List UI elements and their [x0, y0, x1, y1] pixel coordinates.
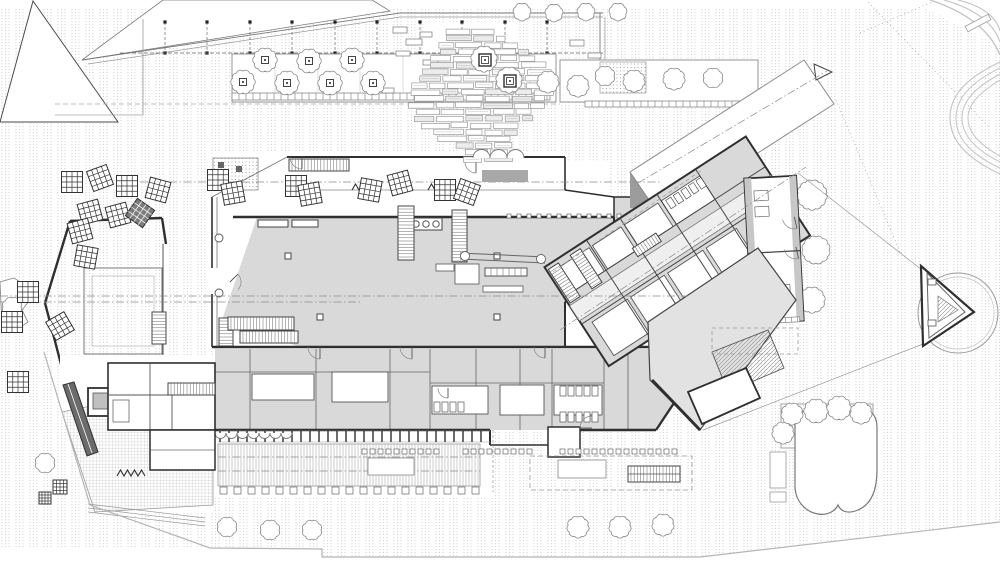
east-terrace-bench	[585, 101, 747, 107]
terrace-table	[253, 48, 277, 72]
paver	[503, 449, 508, 454]
column-marker	[460, 20, 463, 23]
paver-brick	[474, 36, 494, 41]
column	[285, 253, 291, 259]
paver	[388, 487, 395, 494]
table-center	[286, 82, 288, 84]
paver	[290, 487, 297, 494]
column-marker	[290, 20, 293, 23]
reception-desk	[258, 220, 288, 227]
east-terrace	[560, 60, 758, 102]
stall	[568, 386, 574, 396]
paver	[495, 449, 500, 454]
terrace-table	[361, 71, 385, 95]
stall	[458, 402, 464, 412]
paver	[527, 214, 531, 218]
paver	[519, 449, 524, 454]
hall-south-stair-box	[228, 317, 294, 330]
paver	[597, 214, 601, 218]
stall	[560, 412, 566, 422]
paver	[262, 487, 269, 494]
paver-brick	[441, 109, 464, 114]
stall	[450, 402, 456, 412]
paver-brick	[438, 136, 467, 141]
paver-brick	[430, 63, 453, 68]
paving-pad	[368, 458, 414, 475]
paver	[444, 487, 451, 494]
paver	[332, 487, 339, 494]
room	[500, 385, 544, 415]
grid-table	[62, 172, 83, 193]
stall	[592, 386, 598, 396]
tree	[623, 70, 645, 92]
paver	[471, 449, 476, 454]
paver	[472, 487, 479, 494]
table-center	[372, 82, 374, 84]
entry-steps	[289, 159, 349, 171]
column	[317, 314, 323, 320]
stall	[576, 386, 582, 396]
paver-brick	[443, 76, 461, 81]
paver-brick	[456, 143, 473, 148]
pool-planter	[770, 492, 786, 502]
column-marker	[375, 20, 378, 23]
paver	[479, 449, 484, 454]
room	[332, 372, 388, 402]
grid-table	[8, 372, 29, 393]
paver	[386, 449, 391, 454]
paver-brick	[414, 116, 434, 121]
room	[252, 374, 314, 400]
paver-brick	[534, 95, 544, 100]
entry-arches	[473, 150, 524, 159]
paver	[511, 449, 516, 454]
toilet-stalls	[560, 412, 598, 422]
paver	[374, 487, 381, 494]
terrace-table	[231, 70, 255, 94]
paver	[587, 214, 591, 218]
furniture-symbol	[420, 32, 432, 37]
paver	[248, 487, 255, 494]
stall	[560, 386, 566, 396]
paver	[576, 449, 581, 454]
table-center	[242, 81, 244, 83]
paver-brick	[494, 123, 518, 128]
paver	[607, 214, 611, 218]
core-stair-a-box	[398, 206, 414, 260]
paver	[234, 487, 241, 494]
paver	[640, 449, 645, 454]
grid-table	[74, 245, 98, 269]
column	[494, 253, 500, 259]
column	[494, 314, 500, 320]
paver	[426, 449, 431, 454]
stall	[568, 412, 574, 422]
paver-brick	[456, 42, 482, 47]
walkway-column	[537, 255, 546, 264]
tree	[513, 3, 531, 21]
table-center	[329, 82, 331, 84]
paver	[517, 214, 521, 218]
grid-table	[53, 480, 67, 494]
paver-brick	[431, 56, 451, 61]
floor-plan-svg	[0, 0, 1000, 572]
terrace-table	[275, 71, 299, 95]
paver-brick	[466, 96, 483, 101]
paver	[463, 449, 468, 454]
bench	[585, 101, 747, 107]
tree	[781, 403, 803, 425]
paver-brick	[485, 130, 502, 135]
lawn-blob	[795, 408, 877, 514]
southwest-rooms	[108, 363, 215, 430]
paver	[318, 487, 325, 494]
tree	[537, 71, 559, 93]
entry-mat	[482, 170, 528, 182]
pool-planter	[770, 452, 786, 488]
stall	[576, 412, 582, 422]
lookout-bench	[928, 320, 936, 326]
paver	[360, 487, 367, 494]
paver	[507, 214, 511, 218]
paver	[632, 449, 637, 454]
grid-table	[435, 180, 456, 201]
furniture-symbol	[406, 39, 422, 45]
tree	[802, 236, 830, 264]
paver	[600, 449, 605, 454]
paver	[394, 449, 399, 454]
table-center	[351, 59, 353, 61]
paver-brick	[448, 83, 474, 88]
column-marker	[545, 20, 548, 23]
paver	[416, 487, 423, 494]
grid-table	[117, 176, 138, 197]
paver	[664, 449, 669, 454]
tree	[652, 514, 674, 536]
paver-brick	[417, 109, 440, 114]
paver-brick	[437, 116, 464, 121]
column-marker	[333, 20, 336, 23]
paver-brick	[531, 103, 545, 108]
column-marker	[163, 20, 166, 23]
paver-brick	[472, 29, 495, 34]
paver	[527, 449, 532, 454]
tree	[827, 396, 851, 420]
paver	[410, 449, 415, 454]
paver	[458, 487, 465, 494]
paver	[487, 449, 492, 454]
paver-brick	[494, 109, 514, 114]
paver	[346, 487, 353, 494]
paver	[220, 487, 227, 494]
paver	[434, 449, 439, 454]
paver-brick	[456, 102, 482, 107]
paver	[672, 449, 677, 454]
column-marker	[503, 20, 506, 23]
grid-table	[298, 182, 322, 206]
paver	[616, 449, 621, 454]
paver	[568, 449, 573, 454]
bridge-stair	[168, 383, 215, 395]
paver-brick	[486, 116, 503, 121]
paver	[560, 449, 565, 454]
paver-brick	[514, 103, 528, 108]
furniture-symbol	[570, 40, 584, 46]
planter-box	[236, 166, 242, 172]
planter-box	[218, 162, 224, 168]
grid-table	[221, 181, 245, 205]
toilet-stalls	[560, 386, 598, 396]
paver	[402, 449, 407, 454]
paver-brick	[440, 49, 455, 54]
paver	[577, 214, 581, 218]
paver	[276, 487, 283, 494]
paver	[304, 487, 311, 494]
tree	[663, 68, 685, 90]
paver-brick	[429, 83, 445, 88]
paver-brick	[421, 123, 449, 128]
column-marker	[418, 20, 421, 23]
table-center	[308, 60, 310, 62]
terrace-table	[340, 48, 364, 72]
paver	[584, 449, 589, 454]
paver-brick	[519, 56, 535, 61]
paver-row	[560, 449, 677, 454]
paver-brick	[436, 102, 454, 107]
paver-brick	[415, 96, 444, 101]
paver	[567, 214, 571, 218]
paver-brick	[411, 90, 440, 95]
paver-brick	[516, 109, 531, 114]
paver	[418, 449, 423, 454]
hall-south-stair	[240, 331, 298, 343]
bridge-stair-box	[168, 383, 215, 395]
tree	[577, 3, 595, 21]
tree	[850, 402, 872, 424]
terrace-table	[297, 49, 321, 73]
reception-desk	[292, 220, 318, 227]
tree	[609, 516, 631, 538]
round-column	[215, 234, 223, 242]
paver	[656, 449, 661, 454]
tree	[567, 516, 589, 538]
core-stair-a	[398, 206, 414, 260]
furniture-symbol	[396, 51, 410, 56]
paver-brick	[446, 29, 470, 34]
desk	[436, 264, 454, 271]
grid-table	[18, 282, 39, 303]
deck-hatched	[218, 444, 480, 486]
bar-counter	[483, 286, 523, 292]
paver	[592, 449, 597, 454]
paving-pad	[558, 460, 606, 478]
hall-south-stair-box	[240, 331, 298, 343]
paver-brick	[503, 43, 518, 48]
terrace-table	[318, 71, 342, 95]
paver	[378, 449, 383, 454]
column-marker	[248, 20, 251, 23]
grid-table	[358, 178, 382, 202]
paver	[537, 214, 541, 218]
paver	[624, 449, 629, 454]
small-room	[455, 264, 479, 284]
furniture-symbol	[393, 27, 407, 33]
hall-south-stair	[228, 317, 294, 330]
paver-brick	[486, 136, 510, 141]
grid-table	[39, 492, 51, 504]
paver	[402, 487, 409, 494]
tree	[772, 422, 794, 444]
paver	[557, 214, 561, 218]
tree	[609, 3, 627, 21]
paver-brick	[451, 122, 468, 127]
paver-brick	[409, 103, 434, 108]
floor-plan-page	[0, 0, 1000, 572]
furniture-symbol	[588, 53, 601, 58]
lookout-bench	[928, 279, 936, 285]
paver	[608, 449, 613, 454]
paver-brick	[450, 70, 467, 75]
paver-brick	[501, 55, 517, 60]
paver-brick	[423, 69, 449, 74]
stall	[442, 402, 448, 412]
paver-brick	[471, 123, 491, 128]
paver-brick	[522, 62, 546, 67]
tree	[804, 399, 828, 423]
paver-brick	[504, 130, 517, 135]
paver-brick	[466, 130, 482, 135]
paver-brick	[486, 96, 510, 101]
stall	[434, 402, 440, 412]
planter-dot	[509, 80, 511, 82]
tree	[567, 75, 589, 97]
courtyard-stair	[152, 312, 166, 344]
paver	[547, 214, 551, 218]
table-center	[264, 59, 266, 61]
paver	[430, 487, 437, 494]
paver	[648, 449, 653, 454]
paver	[370, 449, 375, 454]
paver-row	[463, 449, 532, 454]
planter-dot	[484, 59, 486, 61]
column-marker	[205, 20, 208, 23]
hearth	[93, 393, 108, 409]
paver	[362, 449, 367, 454]
grid-table	[2, 312, 23, 333]
walkway-column	[461, 252, 470, 261]
tree	[545, 4, 563, 22]
stall	[592, 412, 598, 422]
paver-brick	[496, 36, 505, 41]
paver-brick	[461, 89, 484, 94]
stall	[584, 386, 590, 396]
